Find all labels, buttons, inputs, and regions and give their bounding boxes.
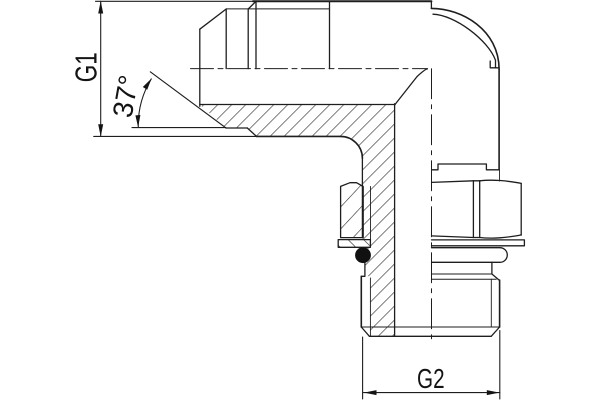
svg-text:G2: G2 — [417, 363, 445, 394]
svg-text:G1: G1 — [69, 52, 104, 82]
